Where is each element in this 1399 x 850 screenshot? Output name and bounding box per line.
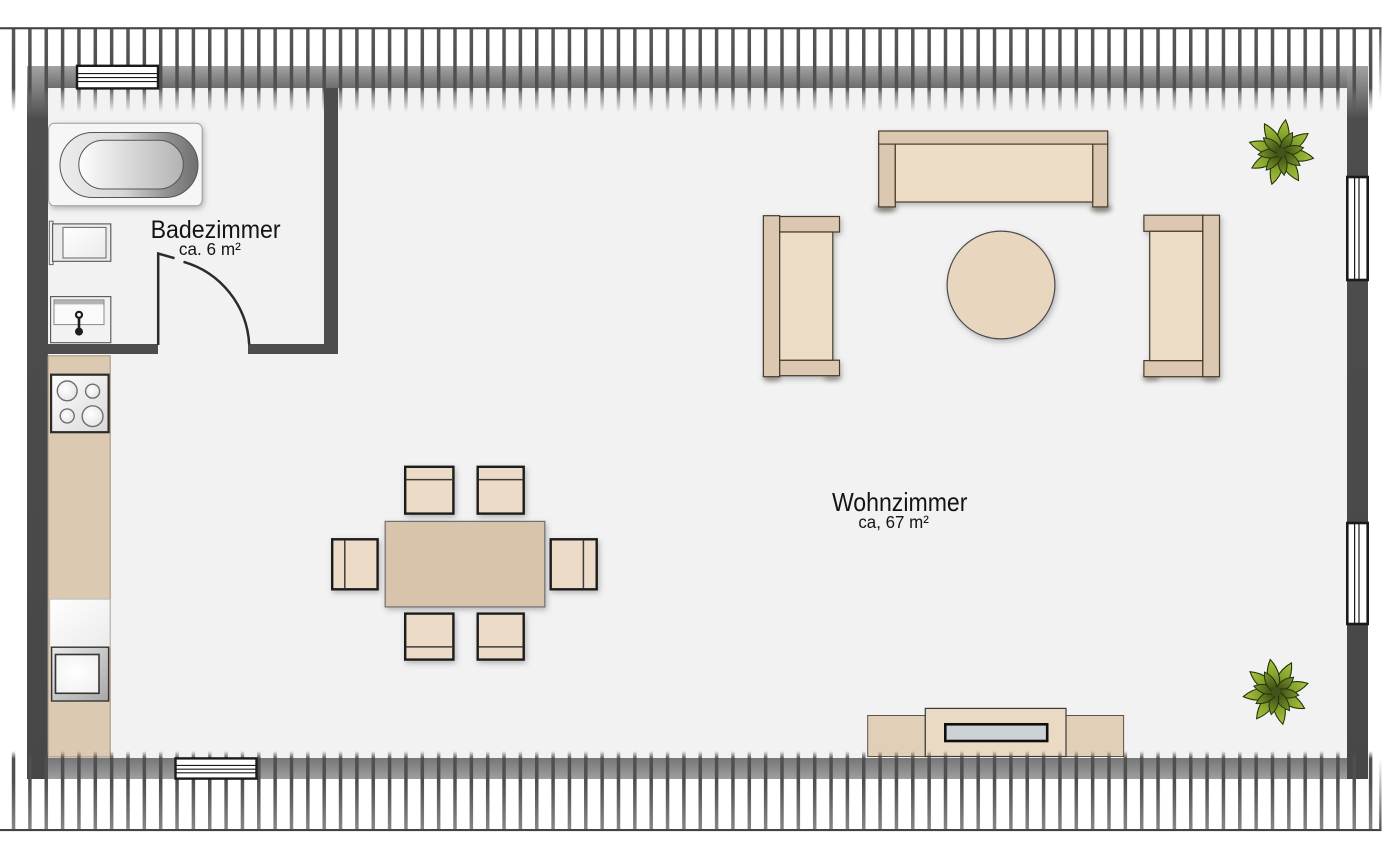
- svg-text:ca, 67 m²: ca, 67 m²: [858, 512, 929, 532]
- svg-text:ca. 6 m²: ca. 6 m²: [179, 239, 241, 259]
